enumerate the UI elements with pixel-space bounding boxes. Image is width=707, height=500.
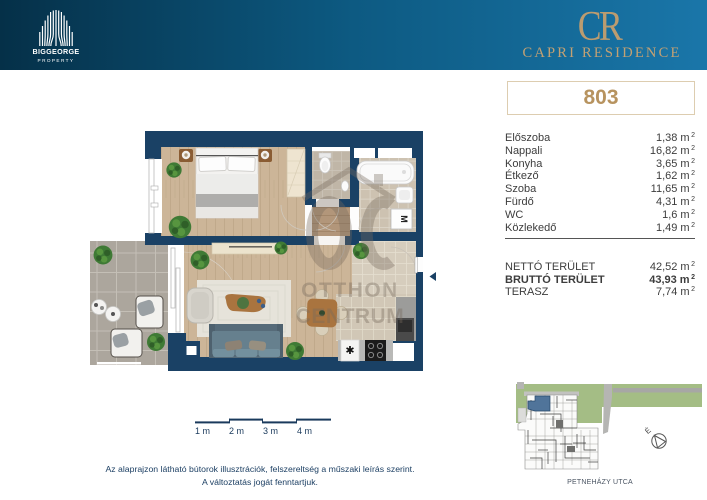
svg-text:OTTHON: OTTHON [301,279,399,302]
svg-text:2 m: 2 m [229,426,244,436]
svg-text:M: M [399,215,409,223]
svg-text:1 m: 1 m [195,426,210,436]
svg-text:4 m: 4 m [297,426,312,436]
svg-text:É: É [643,426,653,436]
svg-text:CENTRUM: CENTRUM [296,305,405,328]
svg-text:✱: ✱ [345,345,354,357]
svg-text:3 m: 3 m [263,426,278,436]
